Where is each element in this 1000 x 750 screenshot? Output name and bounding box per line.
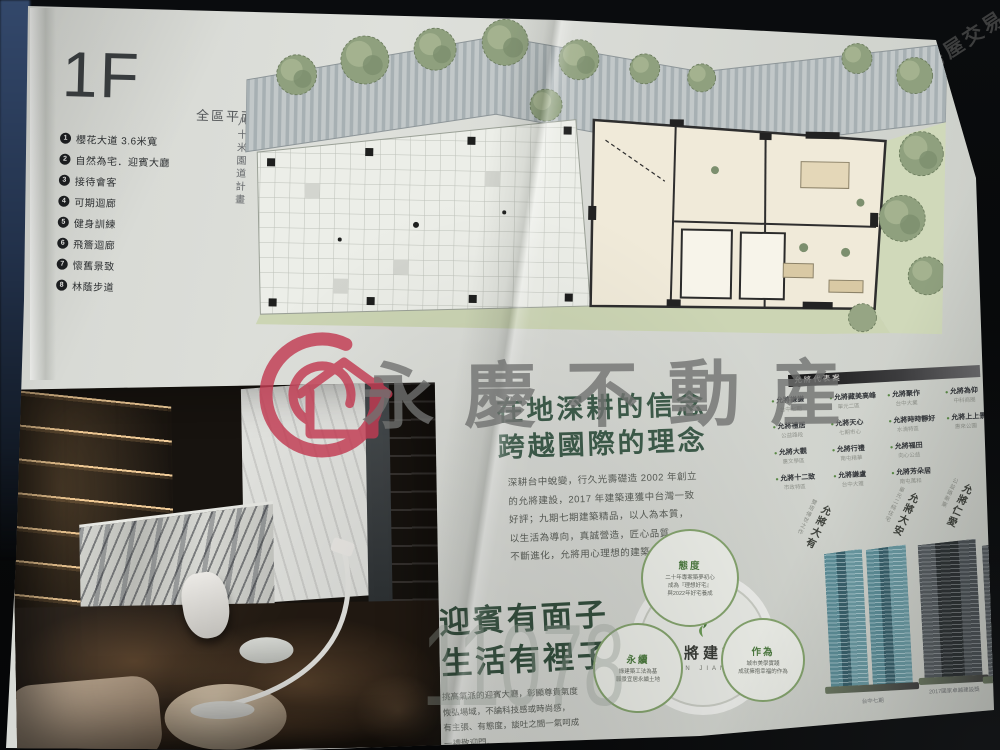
legend-item: 6飛簷迴廊 [57,236,168,254]
floor-label: 1F [61,37,142,113]
tower-caption: 2017國家卓越建設獎 [917,684,991,696]
legend-number-badge: 3 [59,175,70,186]
project-item: 允將行禮南屯精華 [832,442,888,463]
brochure-spread: 1F 全區平面圖 1櫻花大道 3.6米寬 2自然為宅．迎賓大廳 3接待會客 4可… [0,0,1000,750]
twin-tower-render [824,545,913,689]
plaza-tiles [254,114,593,320]
legend-item: 8林蔭步道 [56,278,167,296]
legend-number-badge: 7 [57,259,68,270]
project-item: 允將禮居公益路段 [772,419,828,440]
legend-number-badge: 5 [58,217,69,228]
value-badge: 作為 城市美學實踐 成就擁抱幸福的作為 [721,618,805,702]
project-item: 允將大觀惠文學區 [774,445,830,466]
legend-item: 2自然為宅．迎賓大廳 [59,152,170,170]
intro-paragraph: 深耕台中蛻變，行久光壽礎造 2002 年創立 的允將建設，2017 年建築連獲中… [507,465,780,567]
showcase-list: 允將代表案 允將謙謙台中七期 允將禮居公益路段 允將大觀惠文學區 允將十二致市政… [770,364,998,376]
project-item: 允將上上景惠來公園 [946,410,1000,431]
page-edge-stack [30,8,56,380]
project-item: 允將天心七期市心 [830,416,886,437]
intro-heading-line2: 跨越國際的理念 [497,422,708,465]
project-item: 允將聚作台中大業 [887,387,943,408]
photo-vignette [11,382,441,750]
value-badge: 永續 綠建築工法為基 願景宜居永續土地 [593,623,683,713]
photo-background: 591房屋交易網 1F 全區平面圖 1櫻花大道 3.6米寬 2自然為宅．迎賓大廳… [0,0,1000,750]
legend-item: 3接待會客 [59,173,170,191]
project-item: 允將為仰中科商圈 [945,384,1000,405]
project-item: 允將藏美高峰單元二區 [829,390,885,411]
value-badge: 態度 二十年專案築夢初心 成為『理想好宅』 與2022年好宅養成 [641,529,739,627]
legend-item: 7懷舊景致 [57,257,168,275]
interior-lobby-photo [11,382,441,750]
legend-number-badge: 8 [56,280,67,291]
feature-heading-line2: 生活有裡子 [440,635,612,685]
intro-heading: 在地深耕的信念 跨越國際的理念 [496,386,708,465]
project-item: 允將時時靜好水湳特區 [888,413,944,434]
legend-item: 4可期迴廊 [58,194,169,212]
legend-item: 1櫻花大道 3.6米寬 [60,131,171,149]
tower-caption: 台中七期 [830,694,916,706]
legend-number-badge: 6 [57,238,68,249]
feature-paragraph: 挑高氣派的迎賓大廳，彰顯尊貴氣度 恢弘場域，不論科技感或時尚感， 有主張、有態度… [442,682,620,750]
legend-number-badge: 4 [58,196,69,207]
site-plan-illustration [242,2,948,336]
tower-render [918,539,983,680]
tower-block [982,540,1000,678]
tower-block [918,539,983,680]
project-item: 允將謙謙台中七期 [771,393,827,414]
tower-caption: 市政路地標 [987,684,1000,694]
feature-heading: 迎賓有面子 生活有裡子 [438,594,612,685]
legend-number-badge: 2 [59,154,70,165]
legend-number-badge: 1 [60,133,71,144]
showcase-title-bar: 允將代表案 [788,365,980,387]
tower-renders: 雙塔傳世之作 允將大有 單元二純住宅 允將大安 公益路新案 允將仁愛 [800,467,1000,750]
project-item: 允將福田向心公益 [890,439,946,460]
tower-render [982,540,1000,678]
plan-legend: 1櫻花大道 3.6米寬 2自然為宅．迎賓大廳 3接待會客 4可期迴廊 5健身訓練… [56,131,171,302]
tower-block [824,549,869,689]
legend-item: 5健身訓練 [58,215,169,233]
tower-block [866,545,913,687]
